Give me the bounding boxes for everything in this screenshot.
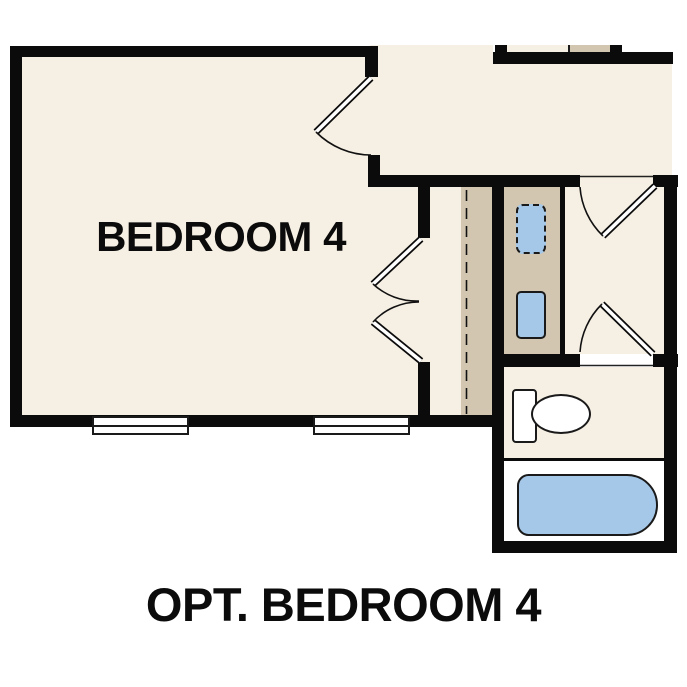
bedroom-label: BEDROOM 4 bbox=[71, 216, 371, 258]
closet-double-door-bottom bbox=[373, 302, 421, 361]
door-swing-arc bbox=[580, 187, 603, 236]
vestibule-door-top bbox=[580, 186, 655, 236]
door-swing-arc bbox=[373, 284, 419, 301]
door-swing-arc bbox=[373, 302, 419, 322]
bedroom-entry-door bbox=[316, 78, 371, 155]
plan-caption: OPT. BEDROOM 4 bbox=[0, 581, 687, 628]
vestibule-door-bottom bbox=[580, 304, 653, 354]
door-swing-arc bbox=[580, 304, 602, 352]
door-swing-arc bbox=[316, 132, 371, 155]
floor-plan: BEDROOM 4 OPT. BEDROOM 4 bbox=[0, 0, 687, 687]
closet-double-door-top bbox=[373, 239, 421, 301]
